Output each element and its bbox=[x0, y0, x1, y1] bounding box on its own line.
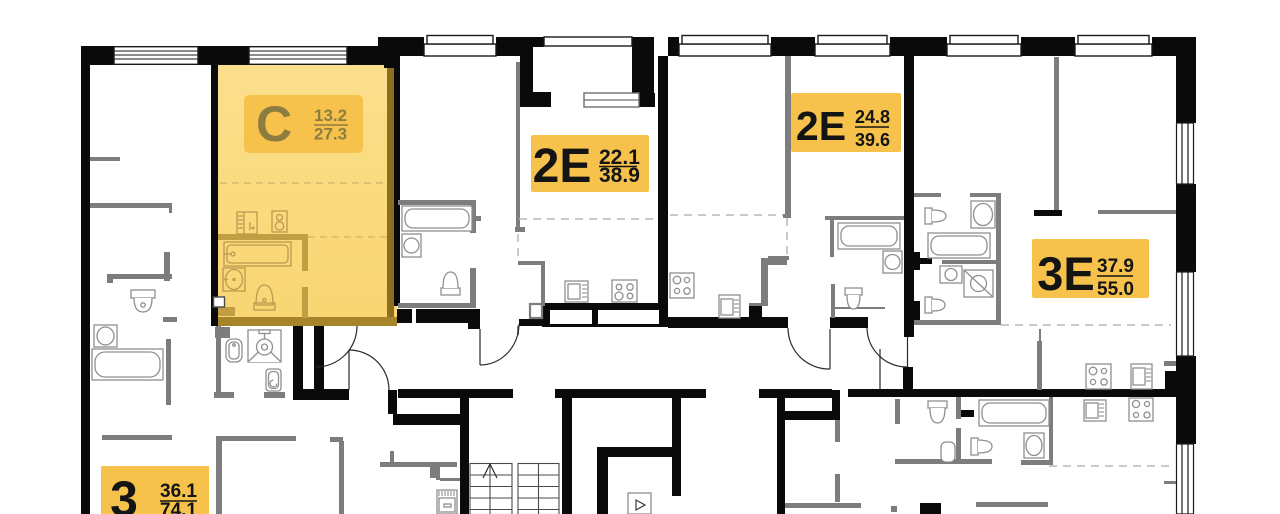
svg-text:3: 3 bbox=[110, 471, 138, 514]
svg-text:2Е: 2Е bbox=[796, 103, 846, 149]
svg-text:55.0: 55.0 bbox=[1097, 279, 1134, 300]
svg-text:24.8: 24.8 bbox=[855, 107, 890, 127]
svg-text:74.1: 74.1 bbox=[160, 500, 197, 514]
svg-text:2Е: 2Е bbox=[533, 140, 592, 193]
svg-text:3Е: 3Е bbox=[1037, 247, 1095, 300]
svg-text:38.9: 38.9 bbox=[599, 164, 640, 187]
svg-text:27.3: 27.3 bbox=[314, 125, 347, 144]
svg-text:С: С bbox=[256, 96, 292, 152]
svg-text:36.1: 36.1 bbox=[160, 481, 197, 502]
svg-text:39.6: 39.6 bbox=[855, 130, 890, 150]
svg-text:37.9: 37.9 bbox=[1097, 256, 1134, 277]
svg-text:13.2: 13.2 bbox=[314, 106, 347, 125]
